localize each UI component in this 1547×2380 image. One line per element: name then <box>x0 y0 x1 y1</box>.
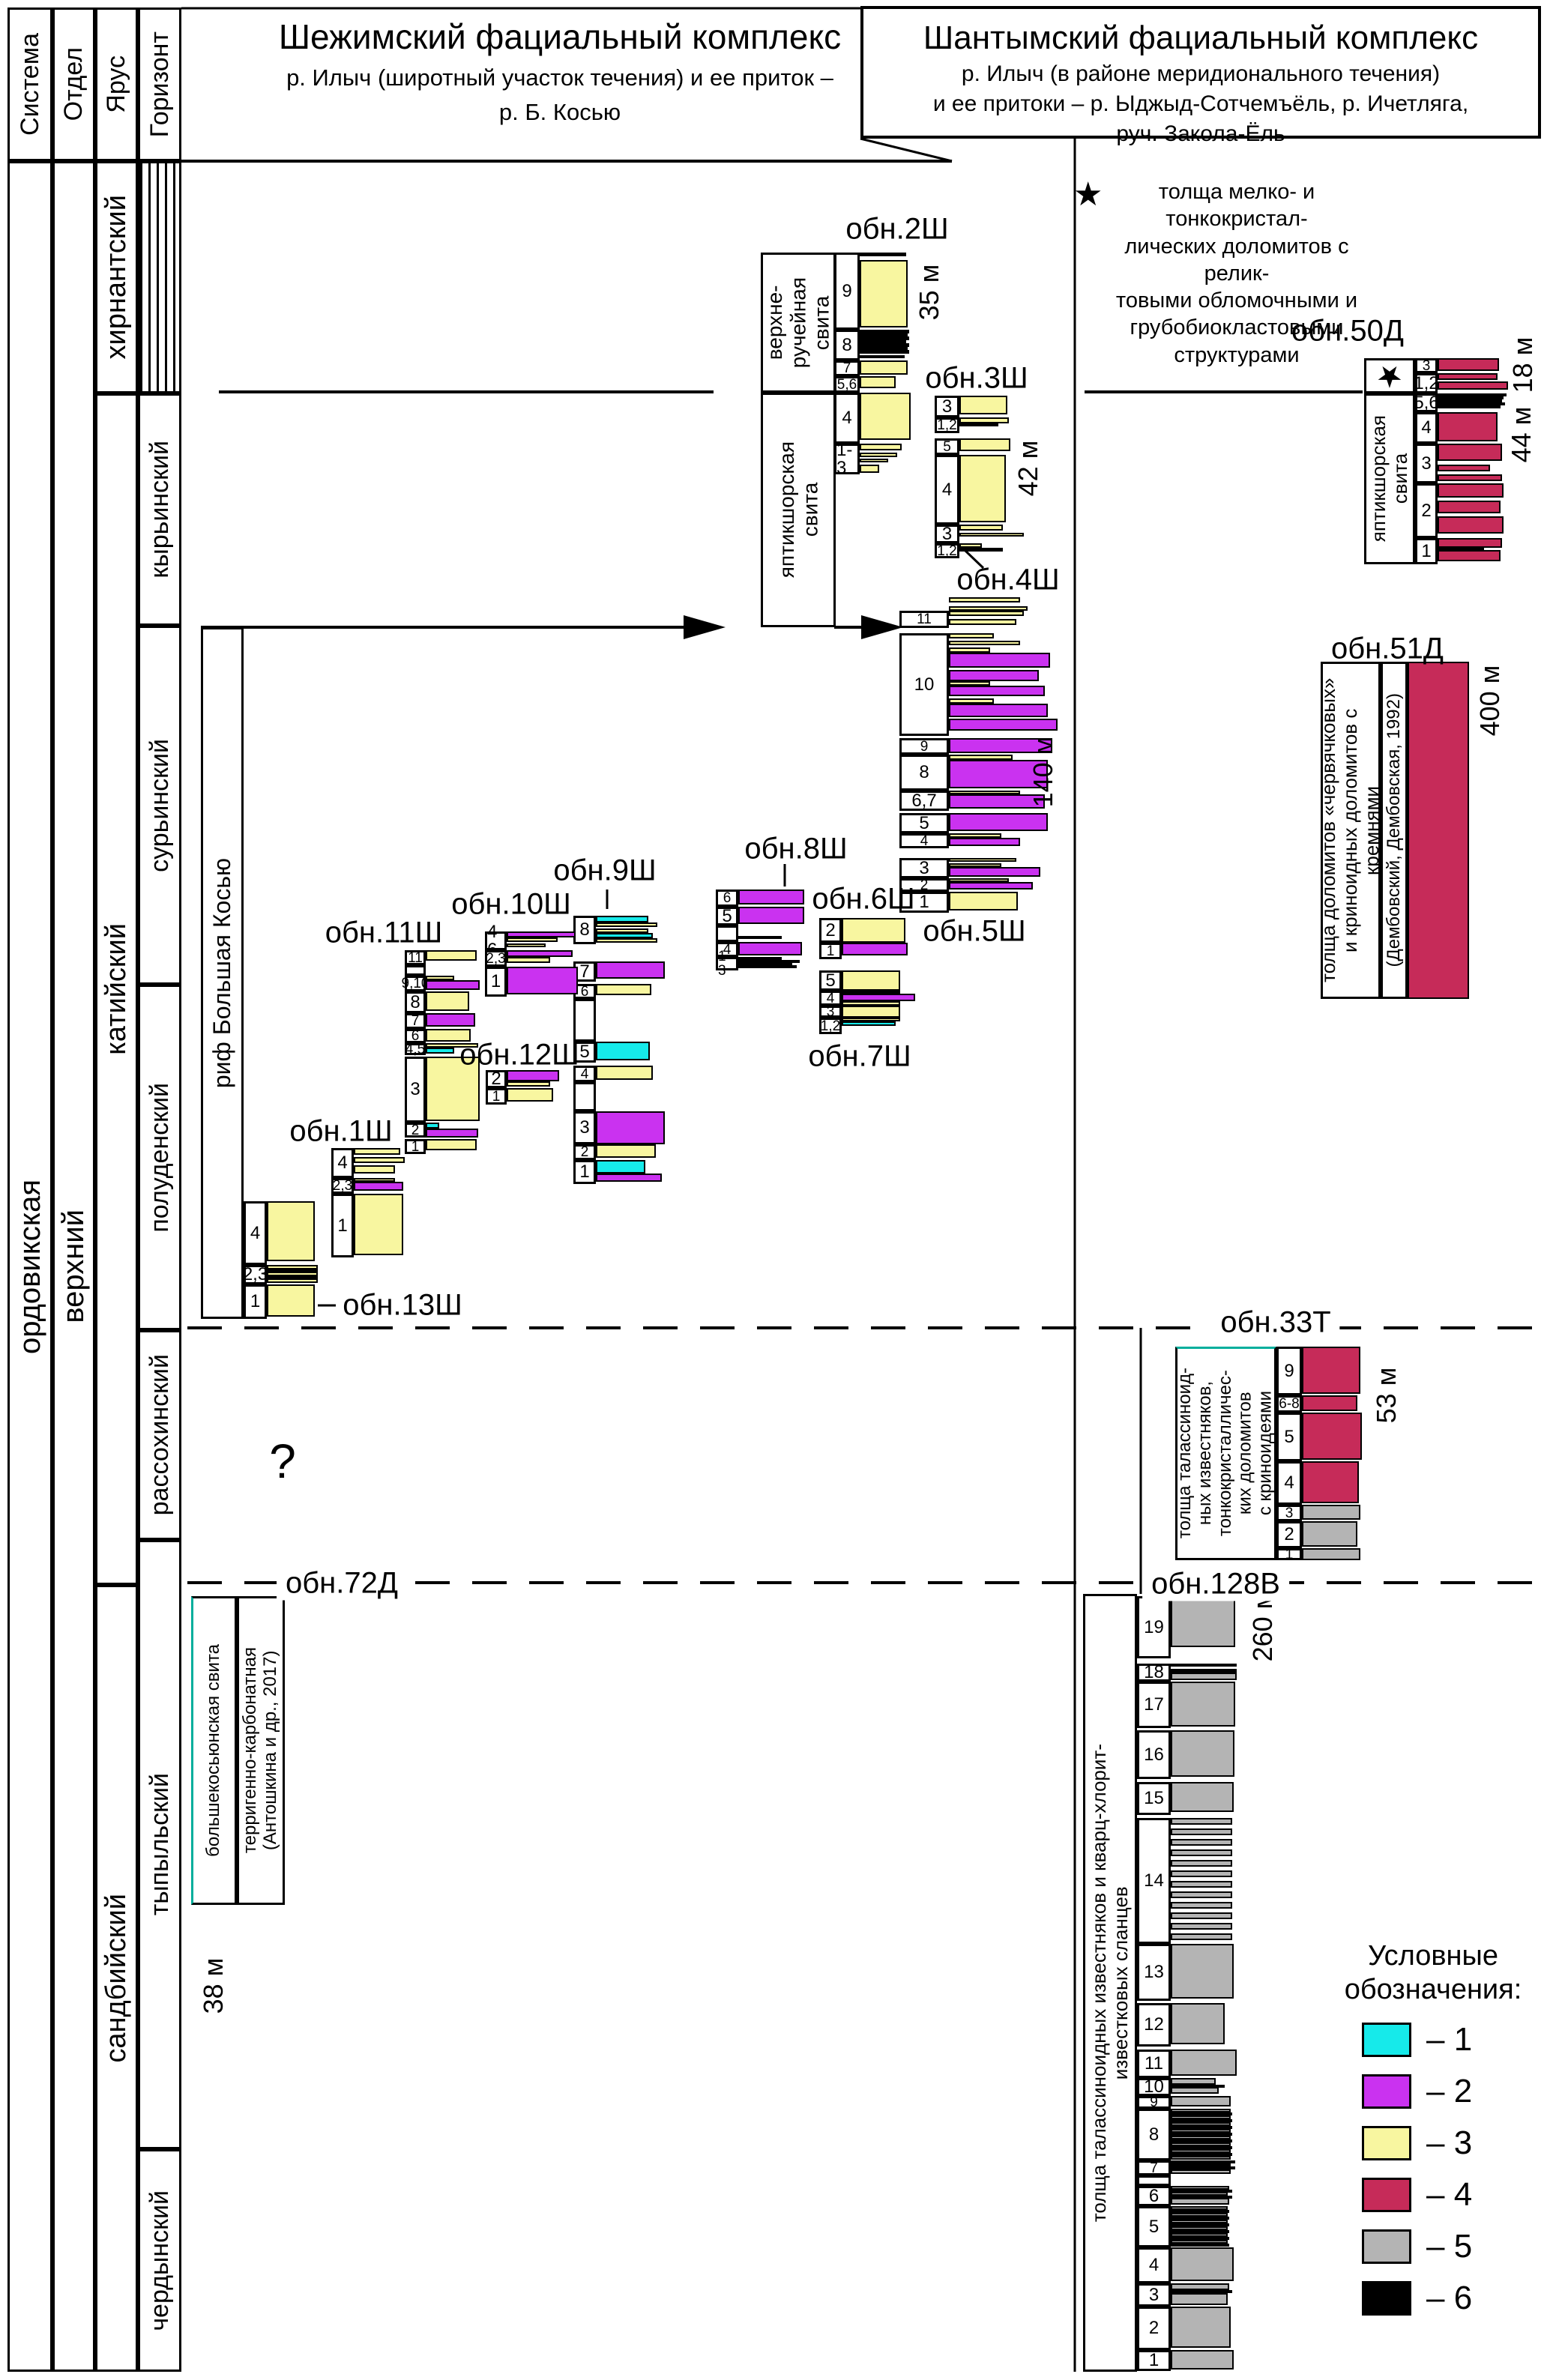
obn-3sh-bed-cell-3: 3 <box>935 396 959 417</box>
obn-128v-lith-strip <box>1171 2293 1228 2305</box>
obn-10sh-lith-strip <box>507 950 573 957</box>
obn-9sh-lith-strip <box>596 1066 653 1080</box>
obn-33t-label: обн.33Т <box>1211 1306 1339 1340</box>
obn-5sh-label: обн.5Ш <box>923 915 1025 949</box>
axis-series-cell: верхний <box>52 161 95 2372</box>
obn-7sh-bed-cell-4: 4 <box>819 991 842 1006</box>
obn-9sh-bed-cell-3: 3 <box>573 1111 596 1144</box>
obn-11sh-bed-cell-1: 1 <box>405 1139 426 1154</box>
obn-5sh-lith-strip <box>949 882 1033 890</box>
obn-8sh-lith-strip <box>738 936 782 939</box>
obn-50d-bed-cell-2: 2 <box>1415 483 1438 538</box>
axis-header-Горизонт: Горизонт <box>138 7 181 161</box>
obn-50d-lith-strip <box>1438 516 1504 534</box>
obn-3sh-lith-strip <box>959 396 1007 414</box>
obn-128v-bed-cell-13: 13 <box>1137 1944 1171 2001</box>
obn-33t-unit-0: толща талассиноид- ных известняков, тонк… <box>1175 1347 1276 1560</box>
obn-11sh-bed-cell-3: 3 <box>405 1057 426 1123</box>
shezhimsky-subtitle-1: р. Илыч (широтный участок течения) и ее … <box>189 64 931 91</box>
obn-3sh-lith-strip <box>959 548 1003 552</box>
obn-5sh-lith-strip <box>949 686 1045 696</box>
obn-33t-bed-cell-9: 9 <box>1276 1347 1302 1395</box>
obn-10sh-lith-strip <box>507 943 546 947</box>
obn-5sh-bed-cell-5: 5 <box>899 813 949 833</box>
obn-2sh-label: обн.2Ш <box>845 213 948 247</box>
legend: Условные обозначения: – 1– 2– 3– 4– 5– 6 <box>1321 1939 1546 2317</box>
obn-11sh-lith-strip <box>426 1123 439 1129</box>
obn-5sh-bed-cell-10: 10 <box>899 633 949 736</box>
obn-128v-lith-strip <box>1171 1828 1232 1835</box>
obn-33t-bed-cell-2: 2 <box>1276 1521 1302 1548</box>
obn-7sh-lith-strip <box>842 1006 900 1018</box>
axis-stage-катийский: катийский <box>95 393 138 1585</box>
obn-5sh-lith-strip <box>949 647 990 653</box>
obn-128v-bed-cell-11: 11 <box>1137 2050 1171 2078</box>
obn-7sh-label: обн.7Ш <box>808 1040 911 1074</box>
obn-128v-lith-strip <box>1171 1730 1234 1777</box>
obn-50d-unit-1: яптикшорская свита <box>1364 393 1415 564</box>
axis-horizon-полуденский: полуденский <box>138 985 181 1330</box>
obn-2sh-lith-strip <box>860 253 906 256</box>
obn-128v-lith-strip <box>1171 2156 1231 2160</box>
axis-horizon-тыпыльский: тыпыльский <box>138 1540 181 2149</box>
obn-50d-bed-cell-1,2: 1,2 <box>1415 373 1438 393</box>
obn-11sh-lith-strip <box>426 991 469 1011</box>
obn-128v-lith-strip <box>1171 2283 1229 2290</box>
obn-128v-lith-strip <box>1171 1870 1232 1877</box>
obn-128v-lith-strip <box>1171 2198 1229 2205</box>
obn-2sh-lith-strip <box>860 444 902 450</box>
legend-item-6: – 6 <box>1362 2280 1546 2317</box>
obn-72d-unit-1: терригенно-карбонатная (Антошкина и др.,… <box>237 1596 285 1905</box>
obn-128v-lith-strip <box>1171 1818 1232 1825</box>
obn-5sh-bed-cell-3: 3 <box>899 858 949 878</box>
obn-11sh-bed-cell-11: 11 <box>405 950 426 965</box>
obn-51d-unit-0: толща доломитов «червячковых» и криноидн… <box>1321 662 1381 999</box>
obn-5sh-bed-cell-6,7: 6,7 <box>899 791 949 811</box>
obn-128v-lith-strip <box>1171 1891 1232 1898</box>
obn-1sh-lith-strip <box>354 1194 403 1255</box>
obn-9sh-lith-strip <box>596 916 648 922</box>
obn-11sh-lith-strip <box>426 1139 477 1150</box>
obn-8sh-lith-strip <box>738 965 797 968</box>
obn-7sh-bed-cell-5: 5 <box>819 970 842 991</box>
obn-2sh-lith-strip <box>860 260 908 327</box>
obn-12sh-label: обн.12Ш <box>459 1039 579 1072</box>
legend-item-label-1: – 1 <box>1426 2021 1472 2059</box>
obn-50d-lith-strip <box>1438 358 1499 371</box>
obn-128v-lith-strip <box>1171 1912 1232 1919</box>
obn-3sh-lith-strip <box>959 423 998 426</box>
obn-2sh-bed-cell-7: 7 <box>834 360 860 376</box>
legend-item-label-3: – 3 <box>1426 2124 1472 2162</box>
obn-12sh-lith-strip <box>507 1081 550 1087</box>
obn-3sh-lith-strip <box>959 438 1010 451</box>
obn-11sh-bed-cell-8: 8 <box>405 991 426 1013</box>
legend-item-label-2: – 2 <box>1426 2073 1472 2110</box>
axis-horizon-сурьинский: сурьинский <box>138 626 181 985</box>
shantymsky-subtitle-1: р. Илыч (в районе меридионального течени… <box>863 61 1538 87</box>
obn-10sh-bed-cell-1: 1 <box>485 967 507 997</box>
obn-8sh-bed-cell-6: 6 <box>716 890 738 907</box>
obn-7sh-bed-cell-3: 3 <box>819 1006 842 1018</box>
obn-9sh-lith-strip <box>596 1160 645 1174</box>
obn-13sh-label: обн.13Ш <box>343 1289 462 1323</box>
obn-50d-lith-strip <box>1438 550 1501 561</box>
obn-50d-bed-cell-3: 3 <box>1415 358 1438 373</box>
obn-2sh-unit-0: верхне- ручейная свита <box>761 253 836 393</box>
obn-3sh-label: обн.3Ш <box>925 362 1028 396</box>
obn-128v-lith-strip <box>1171 2169 1231 2174</box>
obn-128v-label: обн.128В <box>1142 1568 1289 1601</box>
obn-50d-lith-strip <box>1438 381 1508 390</box>
obn-33t-lith-strip <box>1302 1395 1357 1411</box>
obn-72d-label: обн.72Д <box>277 1567 407 1601</box>
obn-5sh-lith-strip <box>949 641 1020 645</box>
obn-6sh-label: обн.6Ш <box>812 883 914 916</box>
obn-9sh-label: обн.9Ш <box>553 854 656 888</box>
obn-5sh-lith-strip <box>949 719 1058 731</box>
obn-1sh-lith-strip <box>354 1148 400 1155</box>
obn-128v-bed-cell-8: 8 <box>1137 2109 1171 2160</box>
obn-5sh-lith-strip <box>949 611 1024 616</box>
question-mark: ? <box>269 1434 296 1489</box>
obn-1sh-bed-cell-4: 4 <box>331 1148 354 1178</box>
obn-2sh-bed-cell-1-3: 1-3 <box>834 444 860 474</box>
obn-50d-lith-strip <box>1438 412 1498 441</box>
obn-1sh-bed-cell-1: 1 <box>331 1194 354 1257</box>
obn-3sh-bed-cell-4: 4 <box>935 455 959 525</box>
obn-5sh-lith-strip <box>949 813 1048 831</box>
legend-items: – 1– 2– 3– 4– 5– 6 <box>1321 2021 1546 2317</box>
obn-8sh-lith-strip <box>738 942 802 955</box>
obn-9sh-lith-strip <box>596 922 657 927</box>
obn-33t-lith-strip <box>1302 1413 1362 1460</box>
shezhimsky-title: Шежимский фациальный комплекс <box>189 16 931 57</box>
legend-item-label-5: – 5 <box>1426 2228 1472 2265</box>
obn-2sh-lith-strip <box>860 453 897 457</box>
obn-10sh-label: обн.10Ш <box>451 888 571 922</box>
obn-50d-lith-strip <box>1438 483 1504 498</box>
obn-7sh-bed-cell-1,2: 1,2 <box>819 1018 842 1034</box>
obn-33t-lith-strip <box>1302 1347 1360 1394</box>
obn-5sh-lith-strip <box>949 670 1039 681</box>
obn-3sh-lith-strip <box>959 525 1003 531</box>
obn-128v-bed-cell-3: 3 <box>1137 2283 1171 2307</box>
obn-7sh-lith-strip <box>842 1021 896 1026</box>
obn-11sh-lith-strip <box>426 1129 478 1138</box>
obn-1sh-label: обн.1Ш <box>289 1115 392 1149</box>
obn-8sh-bed-cell-blank <box>716 925 738 942</box>
obn-128v-lith-strip <box>1171 2050 1237 2076</box>
obn-2sh-lith-strip <box>860 376 896 388</box>
obn-128v-lith-strip <box>1171 1682 1235 1727</box>
obn-11sh-bed-cell-7: 7 <box>405 1013 426 1029</box>
obn-3sh-bed-cell-3: 3 <box>935 525 959 543</box>
obn-5sh-lith-strip <box>949 619 1016 625</box>
obn-50d-lith-strip <box>1438 444 1502 461</box>
obn-5sh-bed-cell-9: 9 <box>899 738 949 755</box>
obn-2sh-lith-strip <box>860 465 879 473</box>
obn-2sh-thickness-label: 35 м <box>914 265 945 321</box>
obn-128v-bed-cell-9: 9 <box>1137 2096 1171 2109</box>
obn-128v-lith-strip <box>1171 1881 1232 1888</box>
obn-33t-lith-strip <box>1302 1548 1360 1560</box>
obn-72d-unit-0: большекосьюнская свита <box>191 1596 237 1905</box>
obn-11sh-lith-strip <box>426 1048 454 1054</box>
axis-horizon-hiatus <box>138 161 181 393</box>
obn-128v-lith-strip <box>1171 2087 1219 2094</box>
obn-33t-bed-cell-5: 5 <box>1276 1413 1302 1461</box>
legend-item-label-4: – 4 <box>1426 2176 1472 2214</box>
obn-50d-lith-strip <box>1438 538 1502 548</box>
obn-72d-thickness-label: 38 м <box>198 1958 229 2014</box>
obn-128v-lith-strip <box>1171 1902 1232 1909</box>
obn-9sh-lith-strip <box>596 1144 656 1158</box>
axis-horizon-чердынский: чердынский <box>138 2149 181 2372</box>
obn-7sh-lith-strip <box>842 970 900 991</box>
obn-12sh-bed-cell-1: 1 <box>486 1088 507 1105</box>
obn-50d-lith-strip <box>1438 373 1498 380</box>
obn-128v-bed-cell-19: 19 <box>1137 1596 1171 1658</box>
obn-50d-thickness-label: 44 м <box>1506 407 1537 463</box>
legend-item-2: – 2 <box>1362 2073 1546 2110</box>
legend-swatch-1 <box>1362 2023 1411 2057</box>
obn-2sh-lith-strip <box>860 360 908 375</box>
obn-50d-lith-strip <box>1438 474 1502 481</box>
shezhimsky-subtitle-2: р. Б. Косью <box>189 99 931 126</box>
obn-50d-bed-cell-5,6: 5,6 <box>1415 393 1438 412</box>
obn-128v-bed-cell-blank <box>1137 2175 1171 2186</box>
obn-128v-lith-strip <box>1171 1782 1234 1812</box>
obn-128v-lith-strip <box>1171 1673 1237 1680</box>
axis-horizon-кырьинский: кырьинский <box>138 393 181 626</box>
obn-9sh-bed-cell-2: 2 <box>573 1144 596 1160</box>
obn-11sh-lith-strip <box>426 980 480 990</box>
obn-4sh-label: обн.4Ш <box>956 564 1059 597</box>
obn-2sh-lith-strip <box>860 393 911 440</box>
obn-5sh-lith-strip <box>949 755 1013 760</box>
shantymsky-subtitle-3: руч. Закола-Ёль <box>863 121 1538 147</box>
obn-33t-thickness-label: 53 м <box>1371 1368 1402 1424</box>
shantymsky-title: Шантымский фациальный комплекс <box>863 19 1538 57</box>
obn-5sh-lith-strip <box>949 653 1050 668</box>
legend-item-label-6: – 6 <box>1426 2280 1472 2317</box>
obn-5sh-lith-strip <box>949 597 1020 602</box>
obn-13sh-lith-strip <box>267 1284 315 1317</box>
obn-10sh-lith-strip <box>507 931 576 937</box>
obn-51d-lith-strip <box>1408 662 1469 999</box>
obn-33t-bed-cell-4: 4 <box>1276 1461 1302 1505</box>
obn-12sh-bed-cell-2: 2 <box>486 1070 507 1088</box>
obn-33t-lith-strip <box>1302 1505 1360 1520</box>
obn-128v-bed-cell-7: 7 <box>1137 2160 1171 2175</box>
obn-8sh-lith-strip <box>738 890 804 904</box>
obn-9sh-lith-strip <box>596 1174 662 1182</box>
obn-10sh-bed-cell-4-6: 4-6 <box>485 931 507 950</box>
obn-8sh-lith-strip <box>738 907 804 924</box>
obn-6sh-lith-strip <box>842 943 908 955</box>
obn-3sh-thickness-label: 42 м <box>1013 441 1044 497</box>
obn-11sh-lith-strip <box>426 950 477 961</box>
obn-6sh-bed-cell-2: 2 <box>819 918 842 943</box>
obn-11sh-bed-cell-4,5: 4,5 <box>405 1043 426 1055</box>
obn-51d-unit-1: (Дембовский, Дембовская, 1992) <box>1381 662 1408 999</box>
obn-13sh-bed-cell-1: 1 <box>244 1284 267 1319</box>
obn-9sh-lith-strip <box>596 933 653 938</box>
obn-128v-lith-strip <box>1171 1944 1234 1999</box>
obn-6sh-bed-cell-1: 1 <box>819 943 842 959</box>
facies-complex-header-shezhimsky: Шежимский фациальный комплекс р. Илыч (ш… <box>189 16 931 126</box>
obn-51d-label: обн.51Д <box>1331 632 1444 666</box>
obn-13sh-lith-strip <box>267 1201 315 1261</box>
axis-system-cell: ордовикская <box>7 161 52 2372</box>
obn-5sh-thickness-label: 140 м <box>1028 737 1059 808</box>
obn-5sh-bed-cell-4: 4 <box>899 833 949 848</box>
obn-33t-bed-cell-1: 1 <box>1276 1548 1302 1560</box>
obn-128v-bed-cell-2: 2 <box>1137 2307 1171 2350</box>
obn-33t-lith-strip <box>1302 1521 1357 1547</box>
obn-128v-lith-strip <box>1171 2247 1234 2281</box>
obn-13sh-bed-cell-2,3: 2,3 <box>244 1265 267 1284</box>
obn-10sh-lith-strip <box>507 937 558 942</box>
shantymsky-subtitle-2: и ее притоки – р. Ыджыд-Сотчемъёль, р. И… <box>863 91 1538 117</box>
obn-2sh-bed-cell-9: 9 <box>834 253 860 330</box>
obn-9sh-lith-strip <box>596 1042 650 1060</box>
facies-complex-header-shantymsky: Шантымский фациальный комплекс р. Илыч (… <box>860 6 1541 139</box>
obn-3sh-lith-strip <box>959 455 1006 522</box>
obn-51d-thickness-label: 400 м <box>1474 665 1506 737</box>
stratigraphic-correlation-diagram: Шежимский фациальный комплекс р. Илыч (ш… <box>0 0 1547 2380</box>
obn-128v-lith-strip <box>1171 2078 1216 2085</box>
obn-5sh-bed-cell-11: 11 <box>899 611 949 628</box>
obn-128v-lith-strip <box>1171 1849 1232 1856</box>
obn-1sh-lith-strip <box>354 1165 395 1174</box>
obn-5sh-lith-strip <box>949 892 1018 910</box>
obn-128v-lith-strip <box>1171 2003 1225 2044</box>
obn-128v-lith-strip <box>1171 2244 1229 2247</box>
obn-9sh-bed-cell-8: 8 <box>573 916 596 944</box>
legend-swatch-6 <box>1362 2281 1411 2316</box>
obn-33t-bed-cell-6-8: 6-8 <box>1276 1395 1302 1413</box>
obn-128v-bed-cell-14: 14 <box>1137 1818 1171 1944</box>
obn-128v-lith-strip <box>1171 1839 1232 1846</box>
obn-5sh-lith-strip <box>949 704 1048 717</box>
obn-5sh-lith-strip <box>949 867 1040 877</box>
obn-8sh-label: обн.8Ш <box>744 833 847 866</box>
obn-128v-lith-strip <box>1171 1923 1232 1930</box>
obn-9sh-lith-strip <box>596 984 651 995</box>
obn-7sh-lith-strip <box>842 994 915 1001</box>
obn-128v-lith-strip <box>1171 1596 1235 1647</box>
obn-5sh-bed-cell-8: 8 <box>899 755 949 791</box>
obn-9sh-lith-strip <box>596 961 665 979</box>
legend-title: Условные обозначения: <box>1321 1939 1546 2007</box>
obn-11sh-bed-cell-blank <box>405 965 426 976</box>
obn-50d-thickness-label: 18 м <box>1507 337 1539 393</box>
obn-10sh-bed-cell-2,3: 2,3 <box>485 950 507 967</box>
obn-50d-bed-cell-4: 4 <box>1415 412 1438 444</box>
obn-11sh-bed-cell-9,10: 9,10 <box>405 976 426 991</box>
legend-item-5: – 5 <box>1362 2228 1546 2265</box>
obn-128v-bed-cell-10: 10 <box>1137 2078 1171 2096</box>
obn-5sh-lith-strip <box>949 633 994 638</box>
obn-50d-bed-cell-1: 1 <box>1415 538 1438 564</box>
obn-11sh-bed-cell-2: 2 <box>405 1123 426 1138</box>
obn-2sh-lith-strip <box>860 459 888 462</box>
obn-50d-lith-strip <box>1438 465 1490 471</box>
obn-2sh-lith-strip <box>860 350 909 354</box>
obn-9sh-bed-cell-blank <box>573 999 596 1042</box>
legend-swatch-4 <box>1362 2178 1411 2212</box>
obn-50d-unit-0: ★ <box>1364 358 1415 393</box>
obn-10sh-lith-strip <box>507 967 578 994</box>
obn-2sh-unit-1: яптикшорская свита <box>761 393 836 627</box>
obn-128v-bed-cell-4: 4 <box>1137 2247 1171 2283</box>
obn-2sh-bed-cell-5,6: 5,6 <box>834 376 860 393</box>
axis-stage-хирнантский: хирнантский <box>95 161 138 393</box>
obn-3sh-lith-strip <box>959 417 1009 423</box>
obn-3sh-lith-strip <box>959 533 1024 537</box>
obn-128v-thickness-label: 260 м <box>1247 1591 1279 1662</box>
legend-item-1: – 1 <box>1362 2021 1546 2059</box>
obn-128v-lith-strip <box>1171 2307 1231 2348</box>
obn-50d-lith-strip <box>1438 501 1501 513</box>
obn-3sh-bed-cell-1,2: 1,2 <box>935 417 959 433</box>
obn-128v-bed-cell-18: 18 <box>1137 1664 1171 1682</box>
obn-128v-lith-strip <box>1171 2350 1234 2370</box>
obn-9sh-lith-strip <box>596 1111 665 1144</box>
axis-header-Ярус: Ярус <box>95 7 138 161</box>
obn-5sh-lith-strip <box>949 858 1016 862</box>
obn-8sh-bed-cell-1-3: 1-3 <box>716 957 738 970</box>
obn-12sh-lith-strip <box>507 1088 553 1102</box>
axis-stage-сандбийский: сандбийский <box>95 1585 138 2372</box>
obn-11sh-label: обн.11Ш <box>325 916 443 950</box>
axis-header-Система: Система <box>7 7 52 161</box>
legend-swatch-5 <box>1362 2229 1411 2264</box>
reef-unit-0: риф Большая Косью <box>201 627 244 1319</box>
correlation-arrowhead-icon <box>861 615 903 639</box>
obn-128v-lith-strip <box>1171 2096 1231 2106</box>
obn-33t-bed-cell-3: 3 <box>1276 1505 1302 1521</box>
obn-1sh-lith-strip <box>354 1182 403 1191</box>
obn-128v-lith-strip <box>1171 1860 1232 1867</box>
obn-50d-lith-strip <box>1438 405 1501 408</box>
obn-9sh-bed-cell-blank <box>573 1082 596 1111</box>
obn-5sh-lith-strip <box>949 838 1020 846</box>
legend-swatch-3 <box>1362 2126 1411 2160</box>
obn-2sh-lith-strip <box>860 355 905 358</box>
correlation-arrowhead-icon <box>684 615 726 639</box>
obn-128v-lith-strip <box>1171 1933 1232 1940</box>
obn-128v-unit-0: толща талассиноидных известняков и кварц… <box>1083 1594 1137 2372</box>
obn-128v-lith-strip <box>1171 1664 1237 1667</box>
obn-3sh-bed-cell-1,2: 1,2 <box>935 543 959 558</box>
obn-128v-bed-cell-12: 12 <box>1137 2003 1171 2047</box>
obn-128v-bed-cell-15: 15 <box>1137 1782 1171 1815</box>
obn-6sh-lith-strip <box>842 918 905 943</box>
legend-swatch-2 <box>1362 2074 1411 2109</box>
obn-128v-bed-cell-5: 5 <box>1137 2206 1171 2247</box>
obn-128v-bed-cell-16: 16 <box>1137 1730 1171 1779</box>
obn-2sh-bed-cell-4: 4 <box>834 393 860 444</box>
obn-1sh-bed-cell-2,3: 2,3 <box>331 1178 354 1194</box>
obn-11sh-lith-strip <box>426 1013 475 1027</box>
legend-item-3: – 3 <box>1362 2124 1546 2162</box>
obn-13sh-lith-strip <box>267 1278 318 1283</box>
obn-10sh-lith-strip <box>507 957 550 963</box>
